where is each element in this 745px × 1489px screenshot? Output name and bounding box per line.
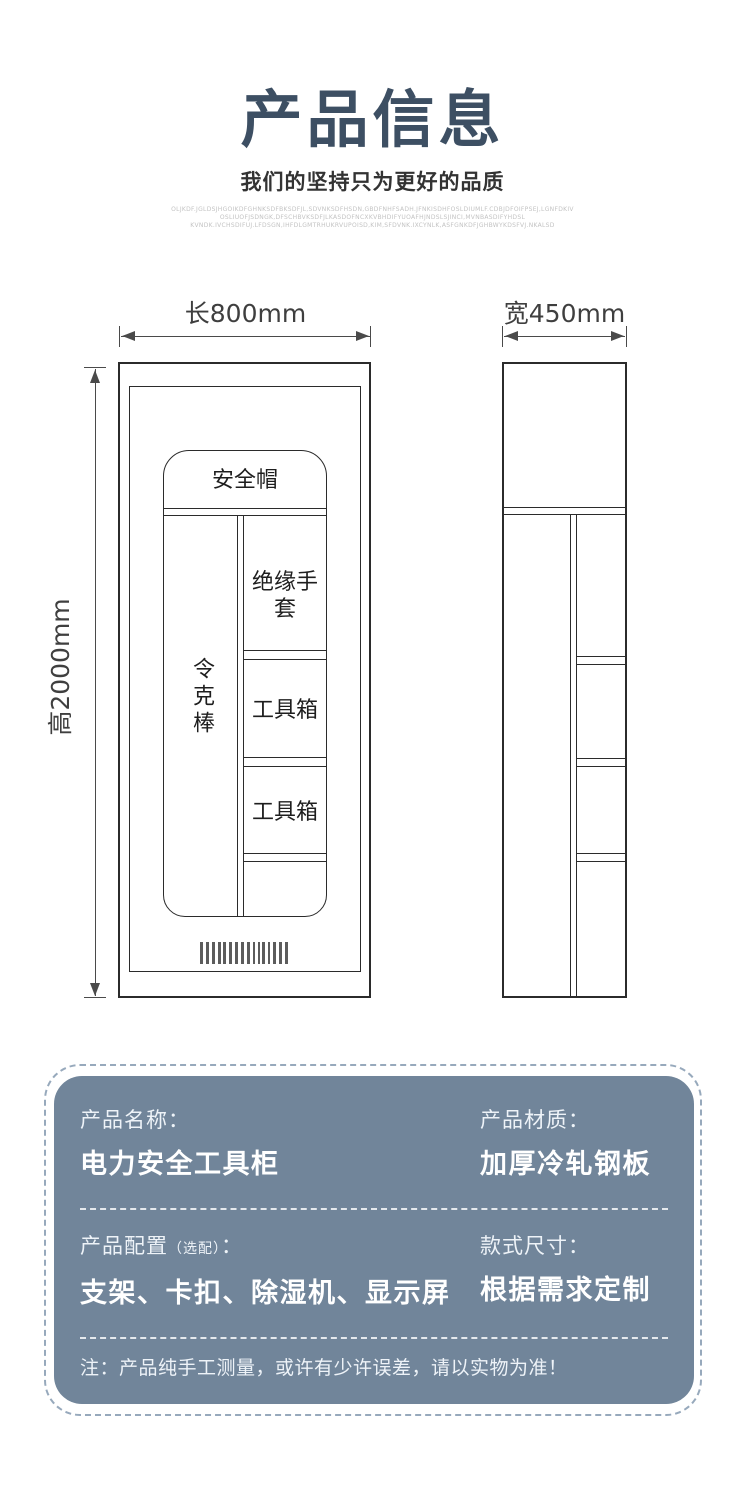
card-divider	[80, 1337, 668, 1339]
dimension-line-height	[95, 369, 96, 996]
product-config-label: 产品配置（选配）：	[80, 1232, 480, 1263]
arrow-left-icon	[505, 331, 518, 341]
config-label-main: 产品配置	[80, 1234, 168, 1258]
dimension-label-width: 宽450mm	[478, 294, 651, 330]
arrow-up-icon	[90, 370, 100, 383]
dimension-line-width	[504, 336, 625, 337]
measurement-note: 注：产品纯手工测量，或许有少许误差，请以实物为准！	[80, 1355, 668, 1381]
side-view-cabinet-body	[502, 362, 627, 998]
dimension-tick	[119, 326, 120, 347]
dimension-tick	[370, 326, 371, 347]
product-material-value: 加厚冷轧钢板	[480, 1148, 668, 1182]
product-config-value: 支架、卡扣、除湿机、显示屏	[80, 1277, 480, 1311]
product-material-label: 产品材质：	[480, 1106, 668, 1134]
front-view-door-window: 安全帽 令克棒 绝缘手套 工具箱 工具箱	[163, 450, 327, 917]
info-card: 产品名称： 电力安全工具柜 产品材质： 加厚冷轧钢板 产品配置（选配）： 支架、…	[54, 1076, 694, 1404]
dimension-tick	[626, 326, 627, 347]
shelf-line	[164, 515, 326, 516]
toolbox-top-label: 工具箱	[244, 698, 326, 724]
dimension-line-length	[121, 336, 370, 337]
shelf-line	[576, 758, 625, 759]
divider-line	[570, 514, 571, 996]
product-info-page: 产品信息 我们的坚持只为更好的品质 OLJKDF.JGLDSJHGOIKDFGH…	[0, 0, 745, 1489]
config-label-paren: （选配）	[168, 1241, 221, 1257]
shelf-line	[576, 656, 625, 657]
dimension-tick	[84, 997, 106, 998]
config-label-colon: ：	[221, 1234, 243, 1258]
shelf-line	[243, 659, 326, 660]
vent-slots	[200, 942, 288, 964]
shelf-line	[164, 508, 326, 509]
helmet-compartment-label: 安全帽	[164, 466, 326, 496]
dimension-tick	[84, 367, 106, 368]
shelf-line	[576, 853, 625, 854]
style-size-label: 款式尺寸：	[480, 1232, 668, 1260]
dimension-label-length: 长800mm	[120, 294, 371, 330]
shelf-line	[243, 861, 326, 862]
rod-compartment-label: 令克棒	[189, 657, 213, 738]
shelf-line	[243, 757, 326, 758]
dimension-tick	[502, 326, 503, 347]
dimension-label-height: 高2000mm	[47, 557, 75, 777]
divider-line	[237, 515, 238, 916]
shelf-line	[504, 507, 625, 508]
arrow-down-icon	[90, 983, 100, 996]
arrow-left-icon	[122, 331, 135, 341]
shelf-line	[243, 766, 326, 767]
gloves-compartment-label: 绝缘手套	[244, 569, 326, 623]
shelf-line	[504, 514, 625, 515]
divider-line	[576, 514, 577, 996]
product-name-label: 产品名称：	[80, 1106, 480, 1134]
shelf-line	[243, 853, 326, 854]
shelf-line	[576, 766, 625, 767]
shelf-line	[576, 664, 625, 665]
shelf-line	[243, 650, 326, 651]
toolbox-bottom-label: 工具箱	[244, 800, 326, 826]
arrow-right-icon	[611, 331, 624, 341]
product-name-value: 电力安全工具柜	[80, 1148, 480, 1182]
arrow-right-icon	[356, 331, 369, 341]
style-size-value: 根据需求定制	[480, 1274, 668, 1308]
card-divider	[80, 1208, 668, 1210]
shelf-line	[576, 861, 625, 862]
